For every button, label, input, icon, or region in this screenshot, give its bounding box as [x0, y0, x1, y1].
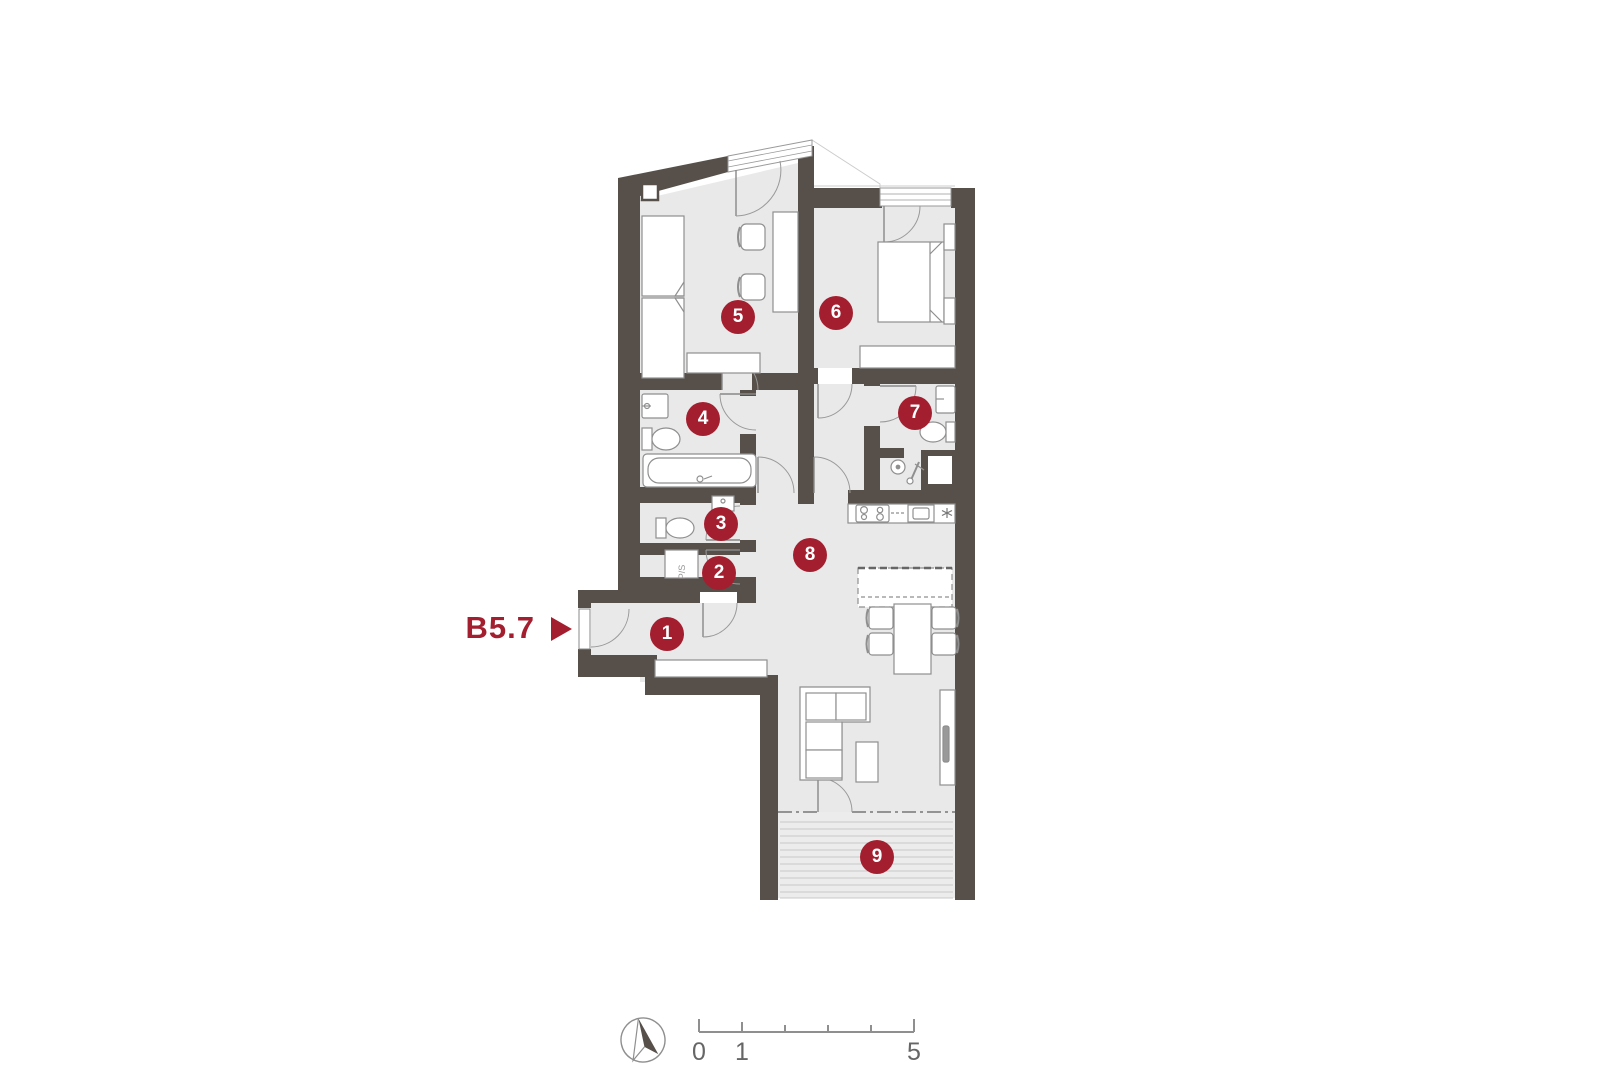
sofa-cushion-3 — [806, 722, 842, 750]
hall-sideboard — [655, 660, 767, 677]
bed-single-2 — [642, 298, 684, 378]
kitchen-island — [858, 568, 952, 607]
scale-bar — [699, 1019, 914, 1032]
scale-label-0: 0 — [692, 1038, 706, 1066]
scale-label-5: 5 — [907, 1038, 921, 1066]
sofa-cushion-2 — [836, 693, 866, 720]
wall-corner-shaft — [642, 184, 658, 200]
roof-outline-lines — [812, 140, 955, 188]
kitchen-sink-basin — [913, 508, 929, 519]
desk — [773, 212, 798, 312]
dresser — [687, 353, 760, 373]
wall-room5-bottom-b — [752, 373, 798, 390]
room-badge-3: 3 — [704, 507, 738, 541]
room-badge-5: 5 — [721, 300, 755, 334]
wall-room3-right-b — [740, 540, 756, 552]
room-badge-2: 2 — [702, 556, 736, 590]
sofa-cushion-4 — [806, 750, 842, 778]
room-badge-1: 1 — [650, 617, 684, 651]
wall-hall-top-stub — [737, 590, 756, 603]
room-badge-9: 9 — [860, 840, 894, 874]
dining-chair-1 — [869, 607, 893, 629]
nightstand-1 — [944, 224, 955, 250]
sofa-cushion-1 — [806, 693, 836, 720]
dining-chair-3 — [932, 607, 956, 629]
north-arrow-icon — [617, 1014, 669, 1066]
coffee-table — [856, 742, 878, 782]
shaft-void — [928, 456, 952, 484]
desk-chair-1 — [741, 224, 765, 250]
wall-room2-bottom — [618, 577, 756, 592]
bed-single-1 — [642, 216, 684, 296]
scale-bar-labels: 0 1 5 — [692, 1038, 921, 1066]
toilet-tank-room3 — [656, 518, 666, 538]
unit-pointer-icon — [551, 617, 572, 641]
wardrobe — [860, 346, 955, 368]
dining-chair-2 — [869, 633, 893, 655]
shower-head-base — [907, 478, 913, 484]
wall-hall-top — [578, 590, 640, 603]
double-bed — [878, 242, 944, 322]
unit-label: B5.7 — [430, 610, 535, 646]
burner-2 — [877, 507, 882, 512]
wall-room6-bottom-b — [852, 368, 955, 384]
shower-drain-center — [896, 465, 900, 469]
wall-right-main — [955, 188, 975, 900]
burner-4 — [877, 514, 884, 521]
scale-label-1: 1 — [735, 1038, 749, 1066]
room-badge-8: 8 — [793, 538, 827, 572]
wall-hall-bottom — [578, 655, 657, 677]
dining-table — [894, 604, 931, 674]
toilet-tank-room7 — [946, 422, 955, 442]
wall-room6-top — [798, 188, 882, 208]
wall-left-main — [618, 178, 640, 592]
wall-room3-right-a — [740, 487, 756, 505]
wall-hall-step-bottom — [645, 675, 778, 695]
entrance-door-leaf — [579, 609, 590, 649]
toilet-tank-room4 — [642, 428, 652, 450]
wall-living-left — [760, 690, 778, 900]
wall-room6-bottom-a — [814, 368, 818, 384]
wc-sink-tap — [721, 499, 725, 503]
room-badge-6: 6 — [819, 296, 853, 330]
burner-1 — [861, 507, 868, 514]
room-badge-7: 7 — [898, 396, 932, 430]
dining-chair-4 — [932, 633, 956, 655]
wall-room4-right-a — [740, 390, 756, 396]
wall-hall-top-b — [640, 590, 700, 603]
toilet-bowl-room3 — [666, 518, 694, 538]
bathtub-faucet — [697, 476, 703, 482]
wall-room7-left-b — [864, 426, 880, 504]
wall-shower-stub — [864, 448, 904, 458]
toilet-bowl-room4 — [652, 428, 680, 450]
desk-chair-2 — [741, 274, 765, 300]
room-badge-4: 4 — [686, 402, 720, 436]
floorplan-page: P/S 0 1 5 B5.7 1 2 3 4 5 6 7 8 9 — [0, 0, 1613, 1080]
washer-label: P/S — [677, 565, 687, 580]
window-room6 — [880, 188, 951, 206]
wall-hall-left-a — [578, 603, 591, 608]
tv — [943, 726, 949, 762]
burner-3 — [862, 515, 867, 520]
wall-room7-left-a — [864, 384, 880, 386]
nightstand-2 — [944, 298, 955, 324]
